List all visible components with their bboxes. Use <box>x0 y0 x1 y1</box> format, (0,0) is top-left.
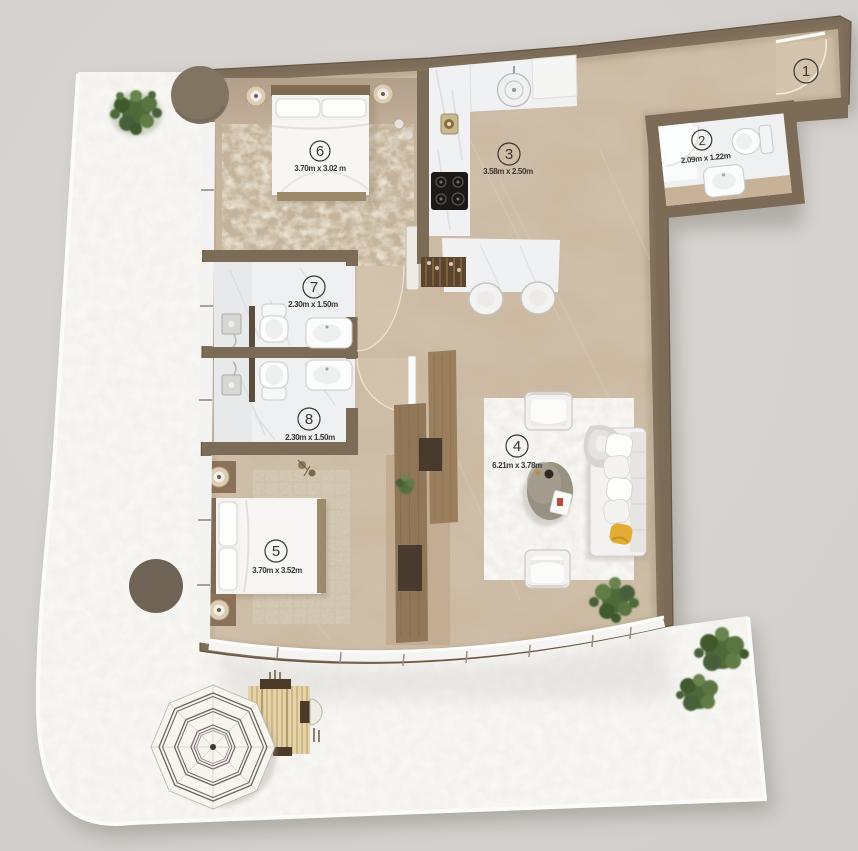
svg-text:5: 5 <box>272 543 280 560</box>
svg-text:3.70m x 3.02 m: 3.70m x 3.02 m <box>294 164 346 173</box>
svg-text:6.21m x 3.78m: 6.21m x 3.78m <box>492 461 542 470</box>
svg-text:7: 7 <box>310 279 318 296</box>
svg-text:8: 8 <box>305 411 313 428</box>
svg-text:2: 2 <box>697 133 706 149</box>
svg-text:3.70m x 3.52m: 3.70m x 3.52m <box>252 566 302 575</box>
svg-text:2.30m x 1.50m: 2.30m x 1.50m <box>288 300 338 309</box>
svg-text:3: 3 <box>505 146 513 163</box>
svg-text:4: 4 <box>513 438 521 455</box>
svg-text:2.30m x 1.50m: 2.30m x 1.50m <box>285 433 335 442</box>
svg-text:3.58m x 2.50m: 3.58m x 2.50m <box>483 167 533 176</box>
svg-text:6: 6 <box>316 143 324 160</box>
svg-text:1: 1 <box>802 63 810 80</box>
